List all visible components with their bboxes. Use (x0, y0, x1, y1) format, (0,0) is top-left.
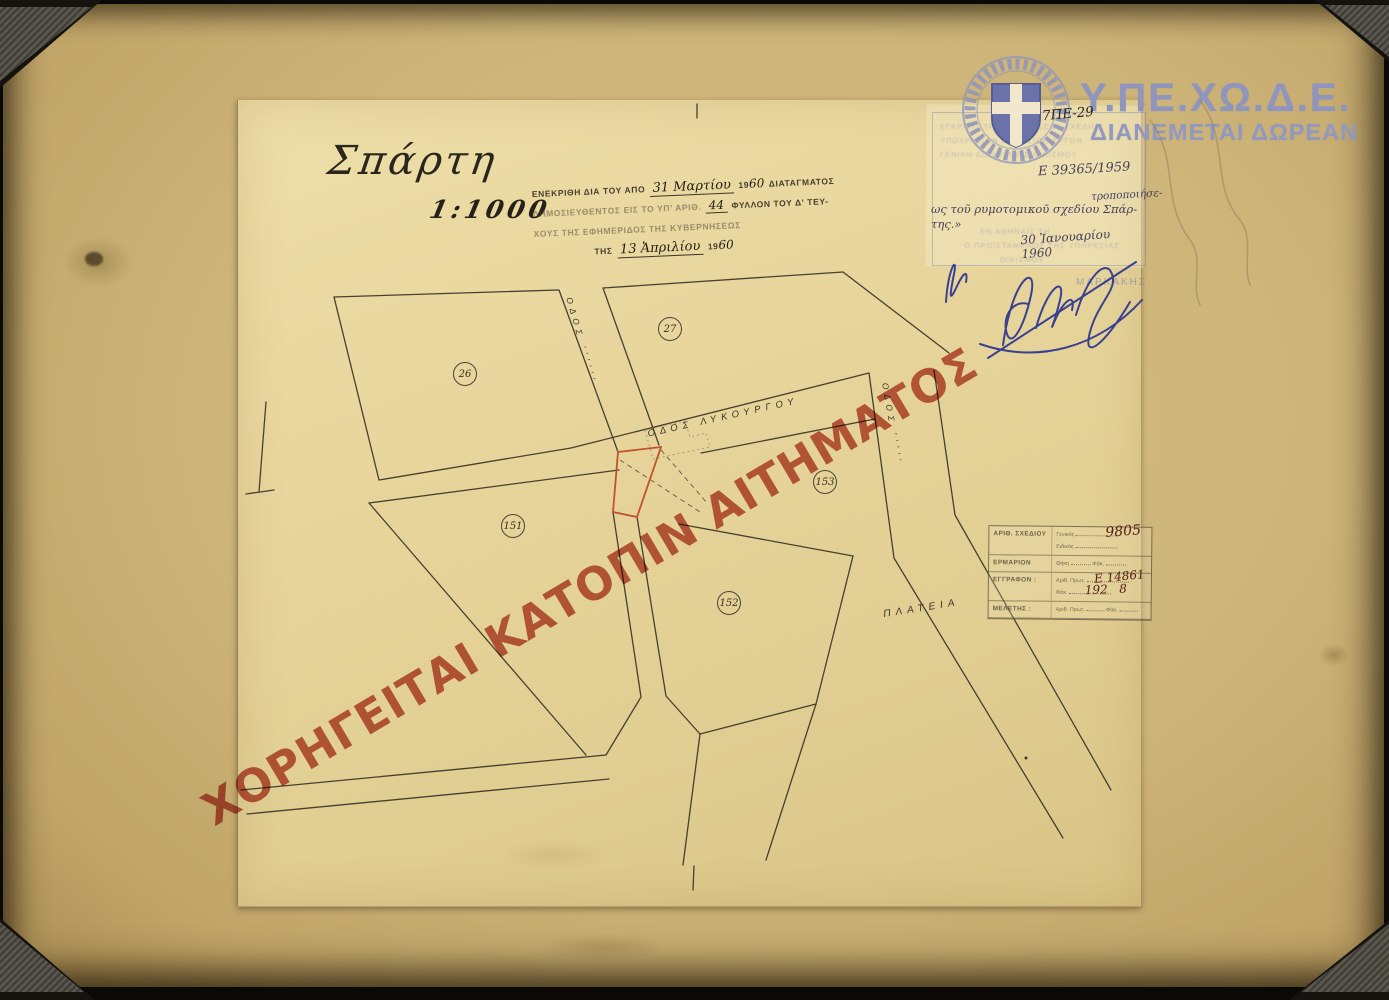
street-stub-tick (246, 490, 274, 494)
block26-bottom-edge (379, 448, 571, 480)
approval-l4-year-hw: 60 (718, 237, 734, 252)
file-stamp-sublabel: Αριθ. Πρωτ. (1056, 578, 1085, 584)
approval-l1-prefix: ΕΝΕΚΡΙΘΗ ΔΙΑ ΤΟΥ ΑΠΟ (532, 184, 646, 199)
file-stamp-sublabel: Γενικός (1056, 532, 1074, 538)
signature-large (1076, 268, 1130, 347)
approval-l1-year-printed: 19 (738, 180, 749, 190)
left-street-east-line (603, 288, 659, 445)
street-stub (259, 402, 266, 492)
block26-top-edge (334, 290, 558, 297)
amendment-hw-2: ως τοῦ ρυμοτομικοῦ σχεδίου Σπάρ- (931, 202, 1137, 216)
south-street-east-line (766, 704, 816, 860)
block-number-26: 26 (453, 362, 477, 386)
bottom-register-tick (693, 866, 694, 890)
approval-l4-prefix: ΤΗΣ (594, 246, 613, 257)
file-stamp-sublabel: Φάκ. (1056, 590, 1068, 596)
file-stamp-sublabel: Φάκ. (1092, 561, 1104, 567)
approval-l4-date-hw: 13 Ἀπριλίου (617, 239, 704, 259)
block-number-152: 152 (717, 591, 741, 615)
file-stamp-label: ΕΡΜΑΡΙΟΝ (989, 555, 1052, 572)
file-stamp-sublabel: Αριθ. Πρωτ. (1056, 607, 1085, 613)
scanned-plan-document: ΟΔΟΣ ΛΥΚΟΥΡΓΟΥ ΟΔΟΣ ′′′′′′ ΟΔΟΣ ′′′′′ ΠΛ… (0, 0, 1389, 1000)
file-number-general-hw: 9805 (1105, 522, 1142, 541)
stain-ring (63, 236, 133, 288)
approval-l2-prefix: ΔΗΜΟΣΙΕΥΘΕΝΤΟΣ ΕΙΣ ΤΟ ΥΠ’ ΑΡΙΘ. (532, 202, 701, 219)
block-number-151: 151 (501, 514, 525, 538)
file-stamp-sublabel: Ειδικός (1056, 544, 1074, 550)
approval-l4-year-printed: 19 (708, 241, 719, 251)
file-stamp-sublabel: Φάκ. (1106, 607, 1118, 613)
file-stamp-label: ΜΕΛΕΤΗΣ : (989, 601, 1052, 618)
block-number-27: 27 (658, 317, 682, 341)
file-stamp: ΑΡΙΘ. ΣΧΕΔΙΟΥ Γενικός Ειδικός ΕΡΜΑΡΙΟΝ Θ… (988, 525, 1153, 621)
approval-l1-date-hw: 31 Μαρτίου (649, 177, 734, 197)
south-street-west-line (683, 734, 700, 865)
approval-l2-number-hw: 44 (705, 198, 727, 214)
file-stamp-row: ΜΕΛΕΤΗΣ : Αριθ. Πρωτ. Φάκ. (989, 601, 1151, 620)
ink-speck (1025, 757, 1028, 760)
block26-left-edge (334, 297, 379, 480)
stain-bottom (543, 934, 663, 960)
file-stamp-sublabel: Θήκη (1056, 561, 1069, 567)
file-stamp-label: ΕΓΓΡΑΦΟΝ : (989, 572, 1052, 601)
signature-small (946, 265, 967, 302)
stain-right (1319, 644, 1349, 666)
block152-bottom-edge (700, 704, 816, 734)
approval-stamp: ΕΝΕΚΡΙΘΗ ΔΙΑ ΤΟΥ ΑΠΟ 31 Μαρτίου 1960 ΔΙΑ… (531, 172, 814, 264)
file-stamp-label: ΑΡΙΘ. ΣΧΕΔΙΟΥ (989, 526, 1052, 555)
stain-blob (85, 252, 103, 266)
block27-top-edge (603, 272, 843, 288)
file-year-hw: 192 8 (1085, 582, 1128, 598)
plan-title: Σπάρτη (325, 138, 501, 184)
amendment-hw-3: της.» (931, 217, 961, 231)
approval-l1-year-hw: 60 (749, 176, 765, 191)
signature-large (1003, 278, 1032, 345)
block152-right-edge (816, 556, 853, 704)
pencil-scribbles (1130, 90, 1290, 320)
